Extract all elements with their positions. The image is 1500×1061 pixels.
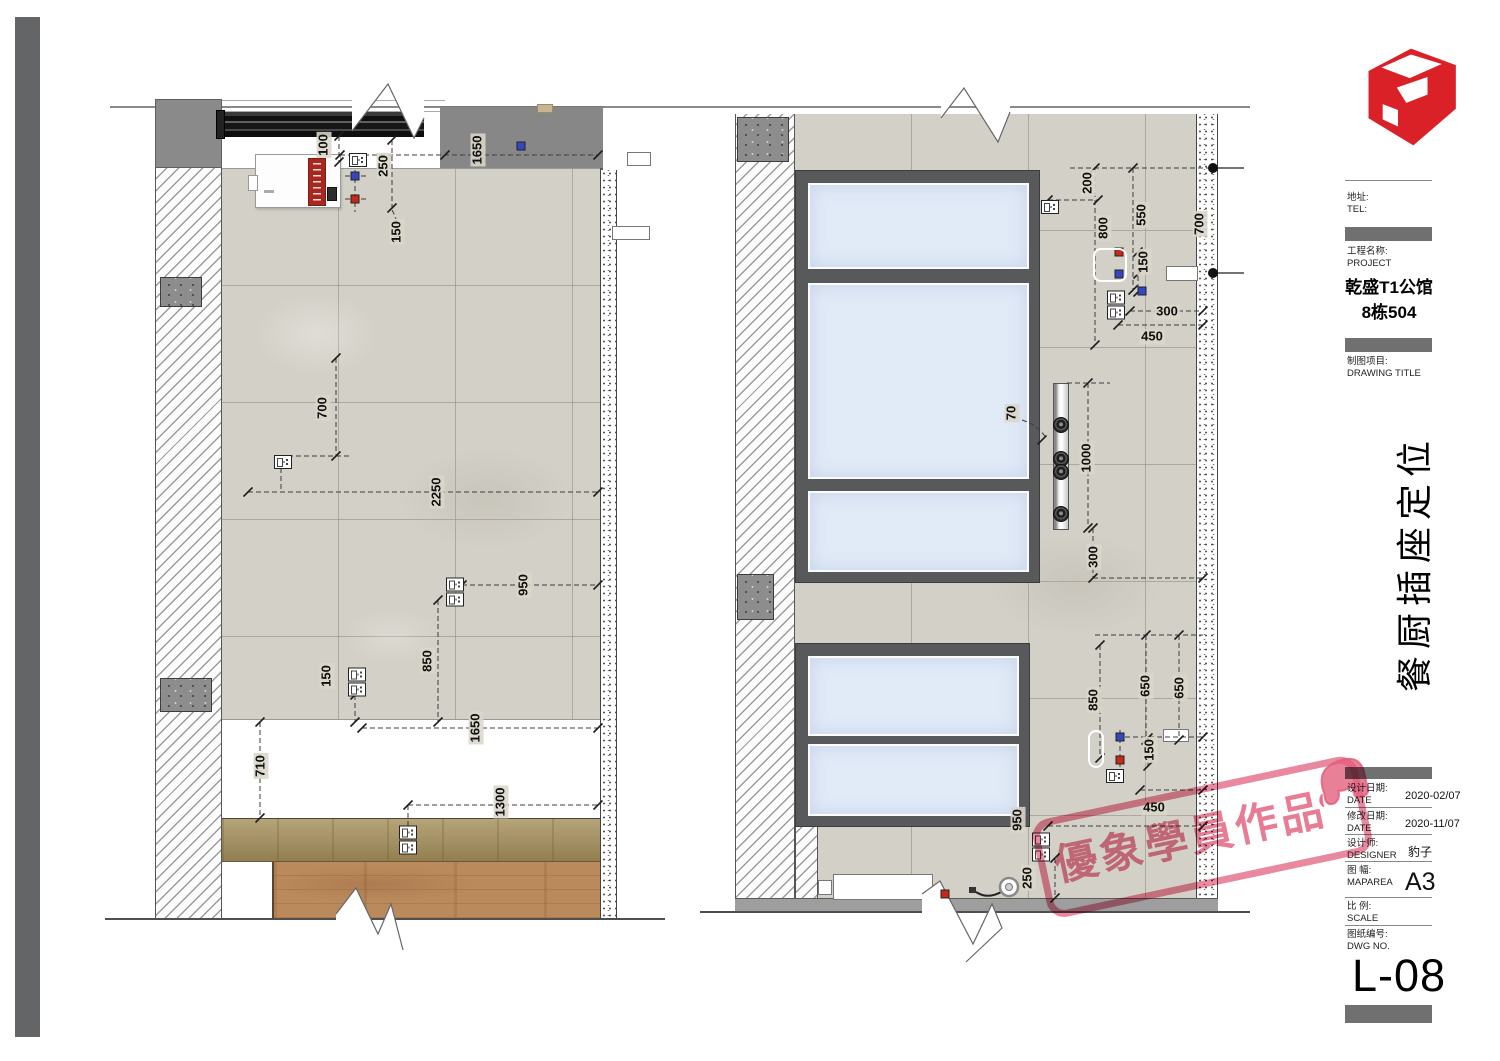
concrete-block bbox=[160, 678, 212, 712]
wall-penetration bbox=[1166, 266, 1198, 281]
concrete-block bbox=[160, 277, 202, 307]
project-name: 乾盛T1公馆8栋504 bbox=[1341, 276, 1437, 325]
left-margin-bar bbox=[15, 17, 40, 1037]
drawing-title-vertical: 餐厨插座定位 bbox=[1386, 434, 1438, 692]
divider bbox=[1345, 861, 1432, 862]
water-heater bbox=[255, 154, 341, 208]
door-track bbox=[222, 100, 445, 112]
baseboard bbox=[735, 898, 1218, 912]
revise-date-label: 修改日期:DATE bbox=[1347, 811, 1388, 835]
section-bar bbox=[1345, 1005, 1432, 1023]
address-label: 地址:TEL: bbox=[1347, 192, 1369, 216]
scale-label: 比 例:SCALE bbox=[1347, 901, 1378, 925]
socket-face bbox=[349, 153, 367, 167]
map-area-value: A3 bbox=[1405, 868, 1436, 897]
speckled-wall-right bbox=[600, 170, 617, 918]
appliance-outline bbox=[1088, 730, 1104, 768]
door-end-cap bbox=[216, 110, 225, 139]
counter-top bbox=[222, 818, 600, 862]
power-track bbox=[1053, 383, 1069, 530]
window-lower bbox=[795, 643, 1030, 827]
track-outlet-icon bbox=[1053, 417, 1069, 433]
floor-line bbox=[105, 918, 665, 920]
divider bbox=[1345, 834, 1432, 835]
speckled-wall-right bbox=[1196, 114, 1218, 898]
appliance-outline bbox=[1093, 248, 1127, 282]
divider bbox=[1345, 925, 1432, 926]
window-pane bbox=[808, 744, 1019, 816]
wall-penetration bbox=[612, 226, 650, 240]
hatched-wall-left bbox=[735, 114, 795, 898]
sliding-door bbox=[222, 112, 424, 137]
drawing-title-label: 制图项目:DRAWING TITLE bbox=[1347, 356, 1421, 380]
floor-line bbox=[700, 911, 1250, 913]
concrete-block bbox=[737, 117, 789, 162]
heater-tab bbox=[248, 175, 258, 191]
heater-unit bbox=[327, 187, 337, 201]
window-pane bbox=[808, 491, 1029, 572]
hatched-wall-lower bbox=[795, 822, 818, 898]
radiator-box-small bbox=[818, 880, 832, 895]
beam-tab bbox=[537, 104, 553, 113]
top-beam bbox=[440, 106, 603, 170]
window-pane bbox=[808, 656, 1019, 736]
radiator-box bbox=[833, 874, 933, 900]
design-date: 2020-02/07 bbox=[1405, 790, 1461, 802]
dimension-label: 710 bbox=[254, 753, 269, 779]
dwg-no-value: L-08 bbox=[1352, 950, 1446, 1002]
window-upper bbox=[795, 170, 1040, 583]
designer-label: 设计师:DESIGNER bbox=[1347, 838, 1397, 862]
socket-icon bbox=[349, 153, 367, 167]
design-date-label: 设计日期:DATE bbox=[1347, 783, 1388, 807]
designer-name: 豹子 bbox=[1408, 843, 1432, 860]
section-bar bbox=[1345, 338, 1432, 352]
window-pane bbox=[808, 183, 1029, 269]
track-outlet-icon bbox=[1053, 506, 1069, 522]
heater-label-mark bbox=[264, 190, 274, 193]
wall-penetration bbox=[627, 152, 651, 166]
map-area-label: 图 幅:MAPAREA bbox=[1347, 865, 1393, 889]
wall-header-block bbox=[155, 99, 222, 168]
window-pane bbox=[808, 283, 1029, 479]
tile-wall bbox=[222, 168, 600, 720]
divider bbox=[1345, 897, 1432, 898]
section-bar bbox=[1345, 767, 1432, 779]
revise-date: 2020-11/07 bbox=[1405, 818, 1460, 830]
track-outlet-icon bbox=[1053, 464, 1069, 480]
sketchup-logo-icon bbox=[1352, 36, 1470, 158]
divider bbox=[1345, 180, 1432, 181]
dimension-label: 1300 bbox=[494, 786, 509, 819]
heater-banner bbox=[308, 158, 326, 206]
counter-front bbox=[272, 862, 600, 918]
divider bbox=[1345, 807, 1432, 808]
section-bar bbox=[1345, 227, 1432, 241]
concrete-block bbox=[737, 574, 774, 620]
project-label: 工程名称:PROJECT bbox=[1347, 246, 1391, 270]
wall-penetration bbox=[1163, 729, 1189, 742]
